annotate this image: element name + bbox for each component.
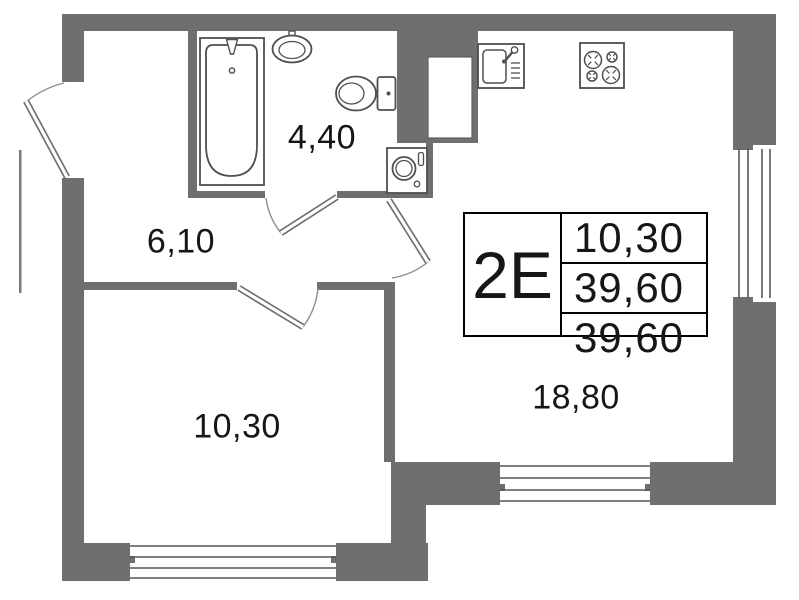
bedroom-door	[239, 288, 318, 327]
wall-right-lower	[733, 302, 776, 462]
wall-hall-bedroom-left	[84, 282, 237, 290]
unit-area-value-1: 10,30	[562, 214, 706, 262]
wall-left-lower	[62, 178, 84, 543]
exterior-boundary-line	[19, 150, 22, 293]
bathtub-icon	[200, 38, 264, 185]
room-area-label-living-kitchen: 18,80	[532, 379, 620, 418]
stove-icon	[580, 43, 624, 88]
kitchen-sink-icon	[478, 44, 524, 88]
wall-living-bottom-right	[650, 462, 776, 505]
room-area-label-hallway: 6,10	[147, 223, 215, 262]
entry-door	[26, 83, 67, 177]
living-room-window	[500, 466, 650, 501]
bedroom-window	[130, 546, 336, 578]
floor-plan: 4,40 6,10 10,30 18,80 2E 10,30 39,60 39,…	[0, 0, 799, 600]
wall-right-upper	[733, 31, 776, 145]
kitchen-door	[389, 200, 428, 278]
unit-area-value-2: 39,60	[562, 262, 706, 312]
unit-info-table: 2E 10,30 39,60 39,60	[463, 212, 708, 337]
wall-bathroom-left	[188, 31, 197, 198]
kitchen-window	[739, 149, 770, 298]
unit-area-value-3: 39,60	[562, 312, 706, 362]
washing-machine-icon	[387, 148, 427, 193]
wall-living-bottom-left	[391, 462, 500, 505]
wall-bottom-bedroom-right	[336, 543, 428, 581]
room-area-label-bedroom: 10,30	[193, 408, 281, 447]
room-area-label-bathroom: 4,40	[288, 119, 356, 158]
wall-room-divider	[384, 282, 395, 462]
wall-top	[62, 14, 776, 31]
wall-left-upper	[62, 31, 84, 82]
window-tab	[733, 297, 753, 302]
ventilation-shaft	[428, 57, 472, 138]
window-tab	[733, 145, 753, 150]
bathroom-door	[266, 197, 337, 233]
unit-type-label: 2E	[465, 214, 562, 335]
sink-icon	[273, 31, 312, 63]
wall-bathroom-bottom-left	[188, 191, 265, 198]
toilet-icon	[336, 77, 396, 111]
wall-hall-bedroom-right	[317, 282, 395, 290]
unit-info-values: 10,30 39,60 39,60	[562, 214, 706, 335]
wall-bottom-left	[62, 543, 130, 581]
